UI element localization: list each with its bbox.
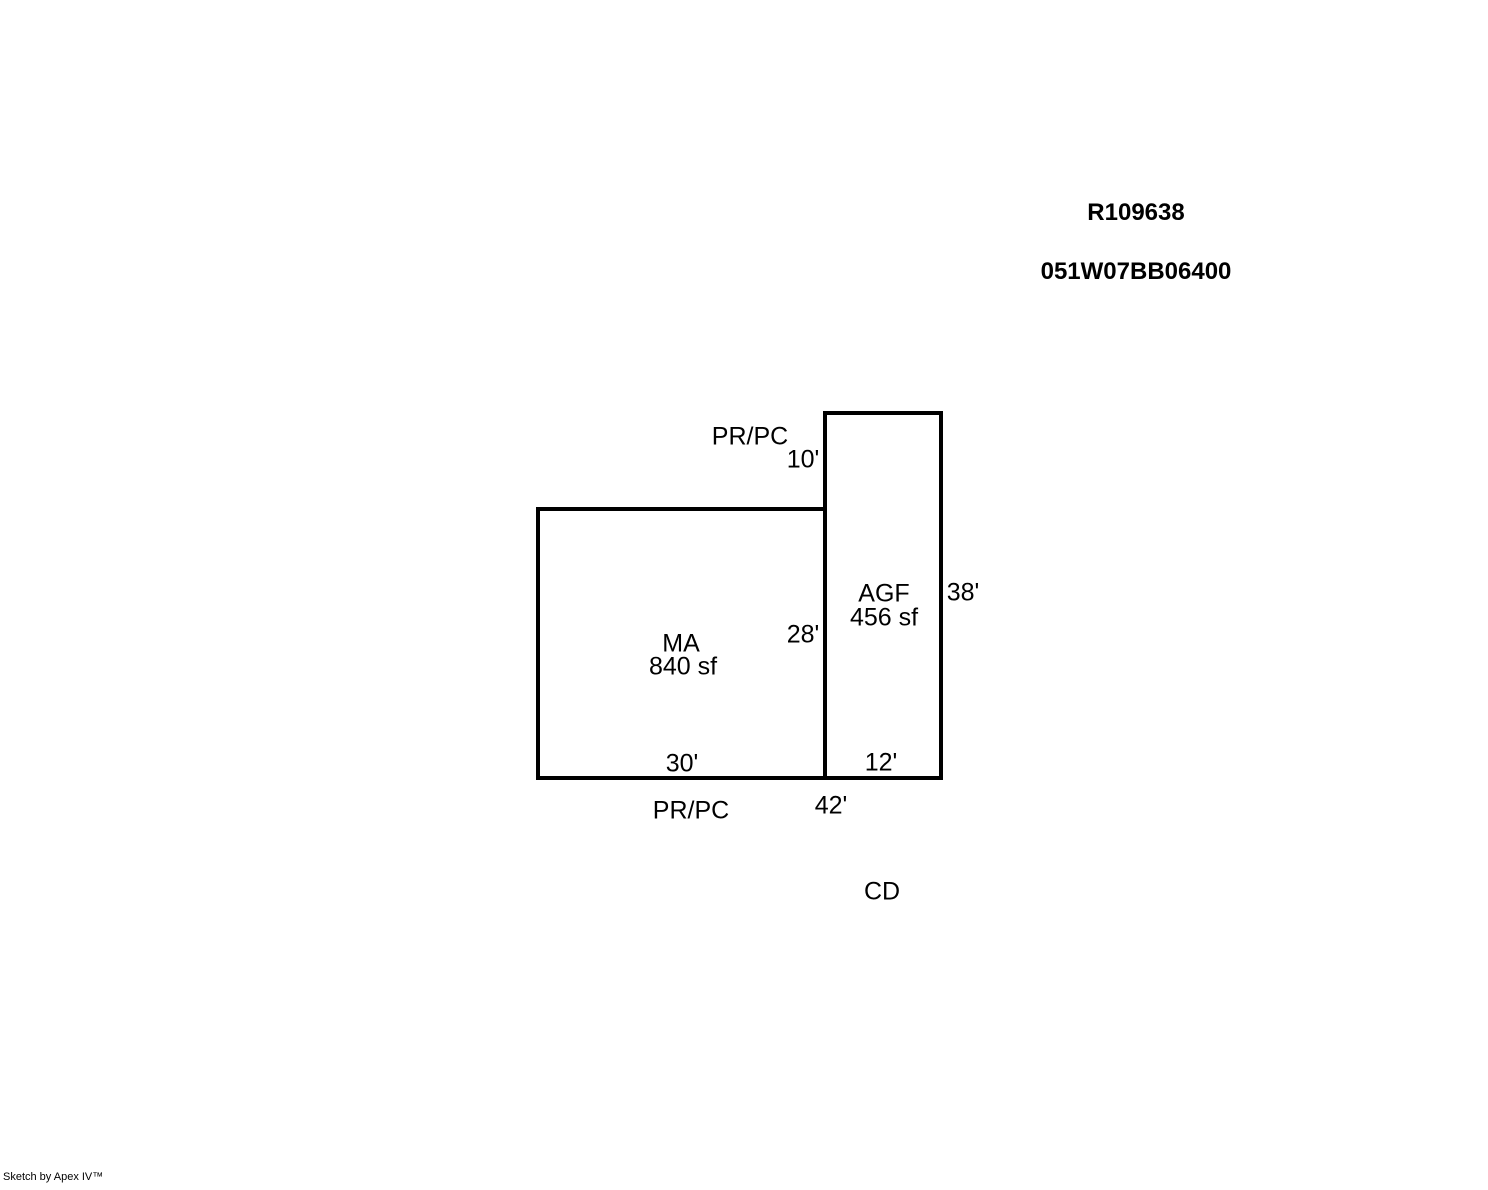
dimension-agf-right: 38' bbox=[947, 581, 980, 606]
dimension-ma-right: 28' bbox=[787, 623, 820, 648]
annotation-cd: CD bbox=[864, 880, 900, 905]
structure-area-ma: 840 sf bbox=[649, 655, 717, 680]
annotation-prpc-bottom: PR/PC bbox=[653, 799, 729, 824]
dimension-ma-bottom: 30' bbox=[666, 752, 699, 777]
record-number: R109638 bbox=[1087, 199, 1184, 227]
sketch-credit: Sketch by Apex IV™ bbox=[3, 1171, 103, 1183]
annotation-overall-width: 42' bbox=[815, 794, 848, 819]
dimension-agf-bottom: 12' bbox=[865, 751, 898, 776]
sketch-page: R109638 051W07BB06400 MA 840 sf 30' 28' … bbox=[0, 0, 1488, 1190]
parcel-number: 051W07BB06400 bbox=[1041, 258, 1232, 286]
structure-area-agf: 456 sf bbox=[850, 606, 918, 631]
dimension-agf-top: 10' bbox=[787, 448, 820, 473]
annotation-prpc-top: PR/PC bbox=[712, 425, 788, 450]
